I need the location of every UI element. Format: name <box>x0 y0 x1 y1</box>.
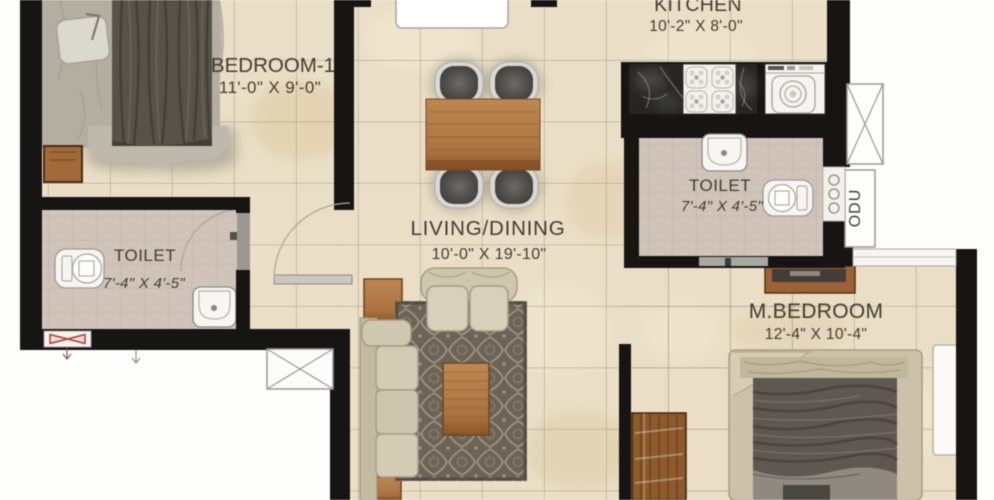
svg-text:10'-2" X 8'-0": 10'-2" X 8'-0" <box>649 18 743 35</box>
svg-text:KITCHEN: KITCHEN <box>654 0 742 16</box>
svg-text:BEDROOM-1: BEDROOM-1 <box>211 54 335 77</box>
svg-text:LIVING/DINING: LIVING/DINING <box>410 217 565 240</box>
svg-text:7'-4" X 4'-5": 7'-4" X 4'-5" <box>103 275 185 292</box>
svg-text:TOILET: TOILET <box>689 176 751 195</box>
svg-text:12'-4" X 10'-4": 12'-4" X 10'-4" <box>765 326 867 343</box>
svg-text:TOILET: TOILET <box>114 246 176 265</box>
svg-text:M.BEDROOM: M.BEDROOM <box>749 300 884 323</box>
svg-text:7'-4" X 4'-5": 7'-4" X 4'-5" <box>681 198 763 215</box>
svg-text:11'-0" X 9'-0": 11'-0" X 9'-0" <box>219 78 321 97</box>
svg-text:10'-0" X 19'-10": 10'-0" X 19'-10" <box>432 246 547 263</box>
svg-text:ODU: ODU <box>847 189 864 228</box>
